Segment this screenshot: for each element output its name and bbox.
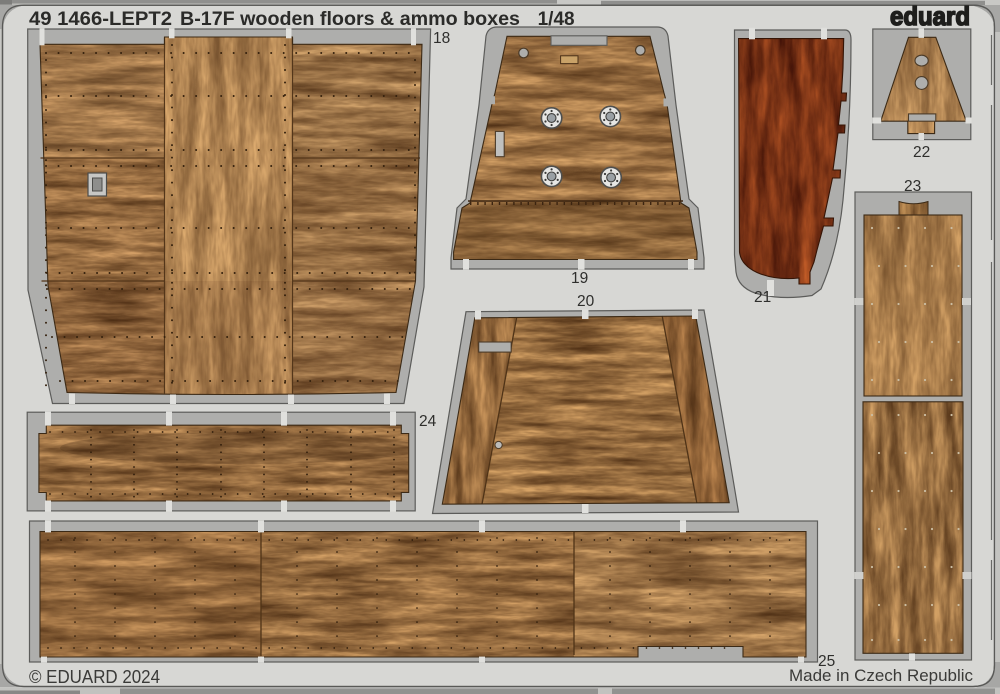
svg-text:B-17F wooden floors & ammo box: B-17F wooden floors & ammo boxes <box>180 9 520 30</box>
svg-text:© EDUARD 2024: © EDUARD 2024 <box>29 666 160 687</box>
svg-text:1/48: 1/48 <box>538 9 575 30</box>
svg-text:23: 23 <box>904 178 921 195</box>
svg-text:49 1466-LEPT2: 49 1466-LEPT2 <box>29 9 172 30</box>
svg-text:eduard: eduard <box>890 1 970 31</box>
svg-text:24: 24 <box>419 413 437 430</box>
svg-text:19: 19 <box>571 270 588 287</box>
svg-text:18: 18 <box>433 30 450 47</box>
svg-text:22: 22 <box>913 144 930 161</box>
svg-text:21: 21 <box>754 289 771 306</box>
svg-text:Made in Czech Republic: Made in Czech Republic <box>789 666 973 685</box>
svg-text:20: 20 <box>577 293 595 310</box>
